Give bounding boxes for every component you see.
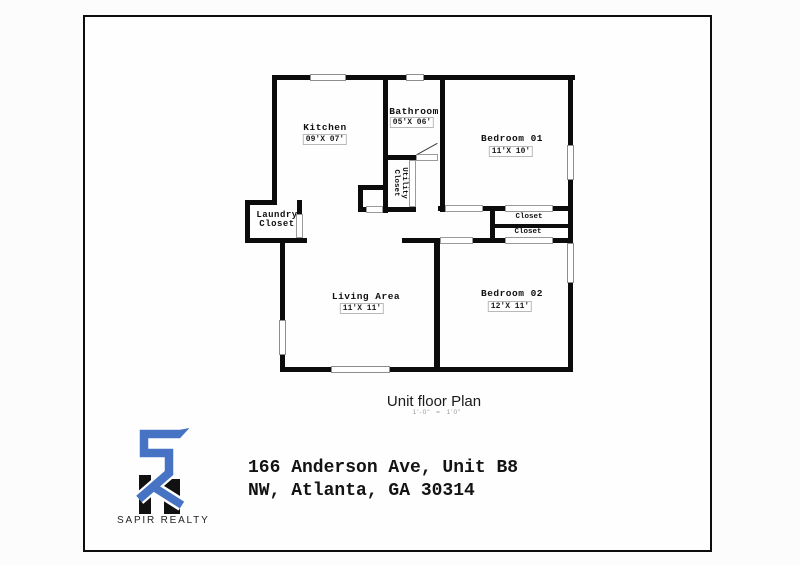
utility-label-line1: Utility — [400, 167, 408, 199]
address-block: 166 Anderson Ave, Unit B8 NW, Atlanta, G… — [248, 457, 518, 503]
door-pantry — [366, 206, 383, 213]
wall-bottom — [283, 367, 573, 372]
wall-laundry-left — [245, 200, 250, 243]
room-dims-bedroom1: 11'X 10' — [489, 146, 533, 157]
utility-label-line2: Closet — [392, 167, 400, 199]
page: Kitchen 09'X 07' Bathroom 05'X 06' Bedro… — [0, 0, 800, 565]
wall-left-upper — [272, 75, 277, 205]
window-bedroom1 — [567, 145, 574, 180]
door-closet-bottom — [505, 237, 553, 244]
room-label-bathroom: Bathroom — [389, 106, 439, 117]
wall-living-bedroom2 — [434, 238, 440, 372]
plan-title: Unit floor Plan — [387, 393, 481, 410]
room-dims-bedroom2: 12'X 11' — [488, 301, 532, 312]
room-label-utility-closet: Utility Closet — [392, 167, 408, 199]
brand-name: SAPIR REALTY — [117, 515, 210, 526]
wall-utility-bottom — [383, 207, 416, 212]
wall-laundry-top — [245, 200, 277, 205]
room-dims-bathroom: 05'X 06' — [390, 117, 434, 128]
room-label-kitchen: Kitchen — [303, 122, 346, 133]
window-bedroom2 — [567, 243, 574, 283]
room-dims-living: 11'X 11' — [340, 303, 384, 314]
door-closet-top — [505, 205, 553, 212]
wall-kitchen-bathroom — [383, 75, 388, 160]
room-label-living: Living Area — [332, 291, 400, 302]
door-bedroom1 — [445, 205, 483, 212]
wall-bathroom-bedroom1 — [440, 75, 445, 212]
room-dims-kitchen: 09'X 07' — [303, 134, 347, 145]
plan-scale: 1'-0" = 1'0" — [413, 409, 462, 416]
room-label-closet-top: Closet — [515, 213, 542, 221]
window-kitchen — [310, 74, 346, 81]
address-line1: 166 Anderson Ave, Unit B8 — [248, 457, 518, 480]
wall-laundry-right-stub — [297, 200, 302, 214]
window-living-left — [279, 320, 286, 355]
window-living-bottom — [331, 366, 390, 373]
room-label-bedroom1: Bedroom 01 — [481, 133, 543, 144]
brand-logo-icon — [125, 424, 220, 519]
laundry-label-line2: Closet — [256, 220, 297, 229]
wall-utility-left — [383, 155, 388, 213]
window-bathroom — [406, 74, 424, 81]
door-utility-closet — [409, 160, 416, 207]
room-label-laundry-closet: Laundry Closet — [256, 211, 297, 229]
wall-laundry-bottom — [245, 238, 307, 243]
door-bedroom2 — [440, 237, 473, 244]
room-label-closet-bottom: Closet — [514, 228, 541, 236]
room-label-bedroom2: Bedroom 02 — [481, 288, 543, 299]
door-bathroom — [416, 154, 438, 161]
address-line2: NW, Atlanta, GA 30314 — [248, 480, 518, 503]
